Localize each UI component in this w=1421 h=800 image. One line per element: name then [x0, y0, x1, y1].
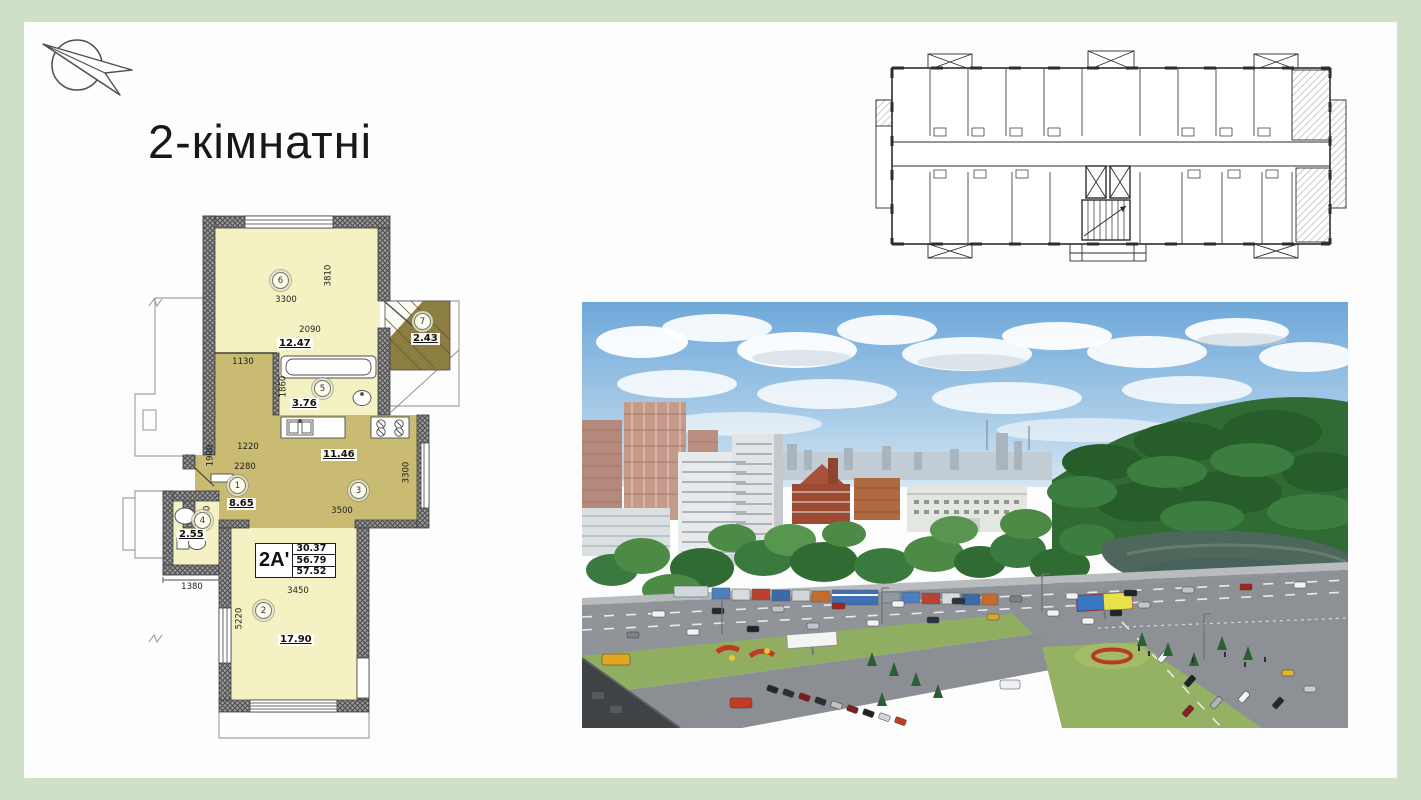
- bath-sink-icon: [353, 391, 371, 406]
- dim-hall-width2: 2280: [228, 461, 262, 472]
- room-2-badge: 2: [255, 602, 272, 619]
- dim-bedroom-width: 3300: [269, 294, 303, 305]
- dim-kitchen-height: 3300: [401, 456, 412, 490]
- building-outline: [892, 68, 1330, 244]
- area-room-2: 17.90: [278, 634, 314, 646]
- unit-label: 2А': [256, 544, 292, 577]
- unit-total-area: 57.52: [293, 567, 335, 577]
- unit-summary-box: 2А' 30.37 56.79 57.52: [255, 543, 336, 578]
- room-3-badge: 3: [350, 482, 367, 499]
- dim-bath-height: 1860: [278, 370, 289, 404]
- stove-icon: [371, 417, 409, 438]
- kitchen-sink-icon: [281, 417, 345, 438]
- area-room-1: 8.65: [227, 498, 256, 510]
- area-room-6: 12.47: [277, 338, 313, 350]
- dim-bedroom-width2: 2090: [293, 324, 327, 335]
- room-1-badge: 1: [229, 477, 246, 494]
- unit-living-area: 30.37: [293, 544, 335, 555]
- dim-living-height: 5220: [234, 602, 245, 636]
- room-5-badge: 5: [314, 380, 331, 397]
- dim-wc-width: 1380: [175, 581, 209, 592]
- room-6-badge: 6: [272, 272, 289, 289]
- paper-plane-logo-graphic: [36, 34, 140, 104]
- area-room-4: 2.55: [177, 529, 206, 541]
- slide-surface: 2-кімнатні: [24, 22, 1397, 778]
- paper-plane-logo: [36, 34, 140, 109]
- building-floor-plan: [872, 42, 1350, 264]
- room-4-badge: 4: [194, 512, 211, 529]
- dim-bedroom-height: 3810: [323, 259, 334, 293]
- apartment-floor-plan: 3810 3300 2090 1130 1860 1220 1900 2280 …: [115, 198, 460, 768]
- room-7-badge: 7: [414, 313, 431, 330]
- bathtub-icon: [281, 356, 376, 378]
- page-title: 2-кімнатні: [148, 114, 372, 169]
- area-room-7: 2.43: [411, 333, 440, 345]
- dim-hall-width1: 1220: [231, 441, 265, 452]
- dim-hall-top: 1130: [226, 356, 260, 367]
- location-photo-scene: [582, 302, 1348, 728]
- unit-area: 56.79: [293, 555, 335, 566]
- dim-kitchen-width: 3500: [325, 505, 359, 516]
- unit-areas: 30.37 56.79 57.52: [292, 544, 335, 577]
- building-floor-plan-drawing: [872, 42, 1350, 264]
- location-photo: [582, 302, 1348, 728]
- dim-living-width: 3450: [281, 585, 315, 596]
- area-room-5: 3.76: [290, 398, 319, 410]
- dim-hall-height: 1900: [205, 439, 216, 473]
- area-room-3: 11.46: [321, 449, 357, 461]
